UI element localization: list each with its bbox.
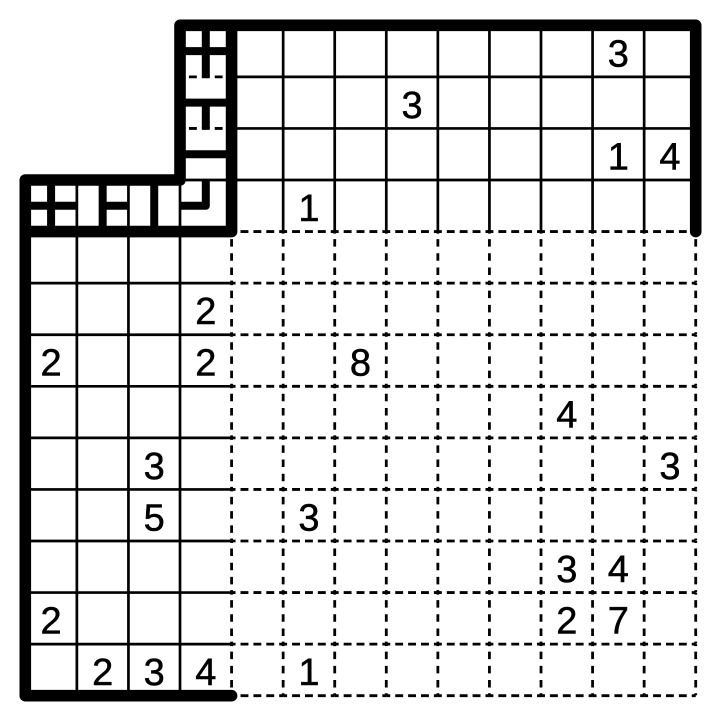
svg-text:4: 4 — [608, 549, 629, 591]
svg-text:8: 8 — [350, 343, 371, 385]
svg-text:3: 3 — [401, 85, 422, 127]
svg-text:2: 2 — [41, 601, 62, 643]
svg-text:1: 1 — [298, 652, 319, 694]
svg-text:2: 2 — [195, 343, 216, 385]
svg-text:1: 1 — [298, 188, 319, 230]
svg-text:3: 3 — [556, 549, 577, 591]
svg-text:4: 4 — [556, 394, 577, 436]
svg-text:3: 3 — [608, 33, 629, 75]
svg-text:2: 2 — [556, 601, 577, 643]
svg-text:2: 2 — [195, 291, 216, 333]
svg-text:3: 3 — [659, 446, 680, 488]
svg-text:3: 3 — [298, 497, 319, 539]
svg-text:7: 7 — [608, 601, 629, 643]
svg-text:1: 1 — [608, 136, 629, 178]
svg-text:4: 4 — [195, 652, 216, 694]
svg-text:3: 3 — [144, 446, 165, 488]
svg-text:5: 5 — [144, 497, 165, 539]
svg-text:2: 2 — [92, 652, 113, 694]
svg-text:4: 4 — [659, 136, 680, 178]
svg-text:3: 3 — [144, 652, 165, 694]
svg-text:2: 2 — [41, 343, 62, 385]
